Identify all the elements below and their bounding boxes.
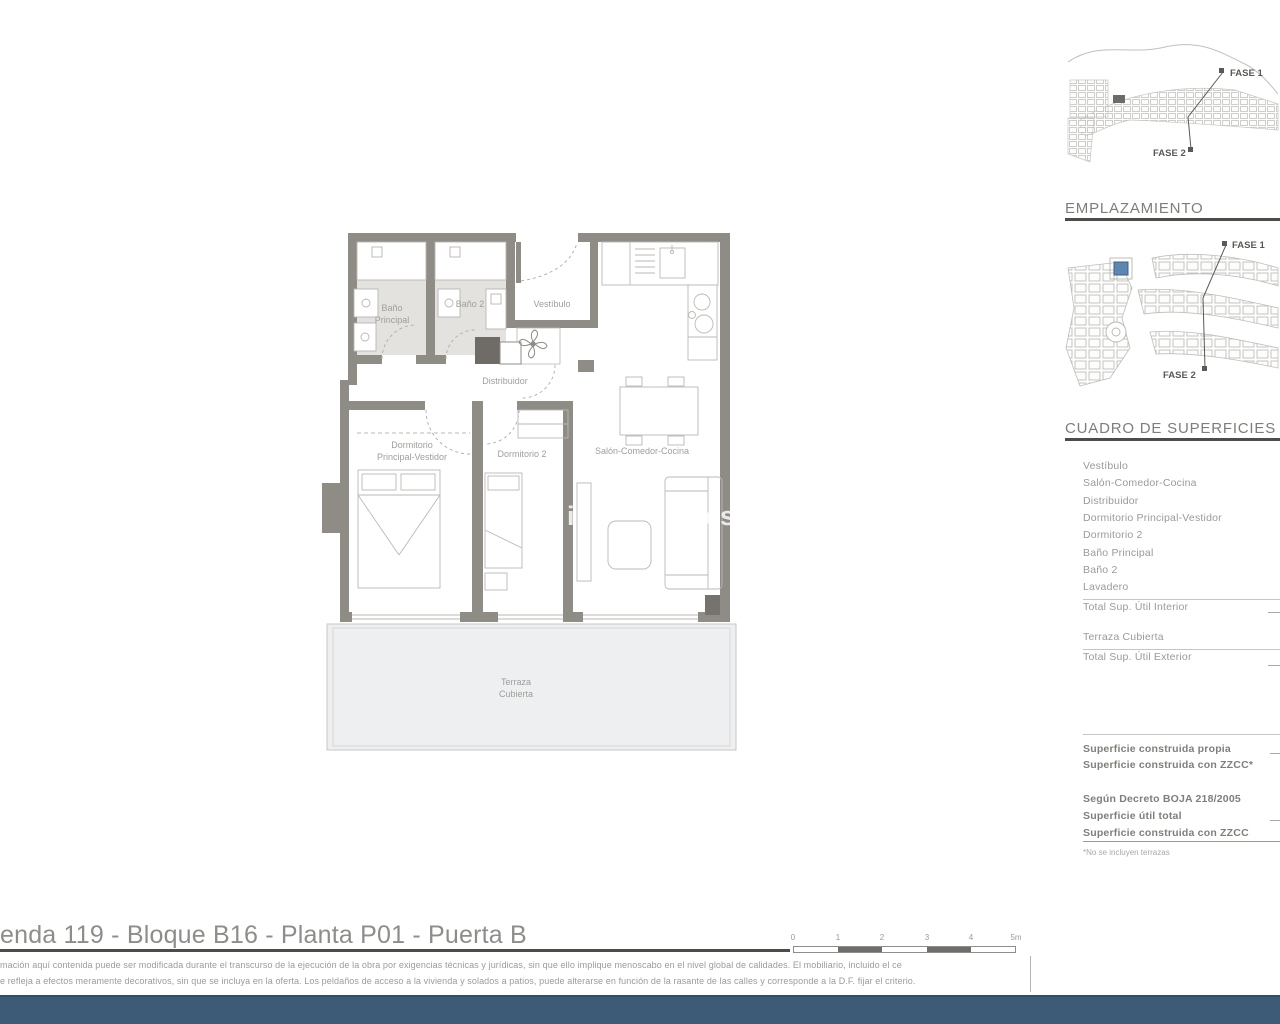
footer-divider: [1030, 956, 1031, 992]
pillar: [705, 595, 720, 615]
floor-plan: Baño Principal Baño 2 Vestíbulo Distribu…: [320, 225, 745, 755]
util-total-row: Superficie útil total: [1083, 810, 1182, 822]
svg-text:es: es: [705, 501, 735, 531]
construida-zzcc-row: Superficie construida con ZZCC*: [1083, 759, 1253, 771]
svg-text:Principal: Principal: [375, 315, 410, 325]
label-vestibulo: Vestíbulo: [533, 299, 570, 309]
decreto-row: Según Decreto BOJA 218/2005: [1083, 793, 1241, 805]
surfaces-rule: [1065, 438, 1280, 441]
surface-row-dormitorio2: Dormitorio 2: [1083, 529, 1143, 541]
label-dormitorio2: Dormitorio 2: [497, 449, 546, 459]
label-dormitorio-principal: Dormitorio: [391, 440, 433, 450]
construida-propia-row: Superficie construida propia: [1083, 743, 1231, 755]
label-distribuidor: Distribuidor: [482, 376, 528, 386]
site-plan-overview: FASE 1 FASE 2: [1060, 22, 1280, 187]
label-terraza: Terraza: [501, 677, 531, 687]
disclaimer-line1: mación aquí contenida puede ser modifica…: [0, 960, 902, 970]
terraza-row: Terraza Cubierta: [1083, 631, 1164, 643]
terrazas-footnote: *No se incluyen terrazas: [1083, 848, 1170, 857]
surface-row-salon: Salón-Comedor-Cocina: [1083, 477, 1197, 489]
site-plan-emplazamiento: FASE 1 FASE 2: [1060, 228, 1280, 396]
windows: [352, 615, 698, 619]
surfaces-heading: CUADRO DE SUPERFICIES: [1065, 420, 1276, 437]
total-interior-topline: [1083, 599, 1280, 600]
terrace: [327, 624, 736, 750]
emplazamiento-heading: EMPLAZAMIENTO: [1065, 200, 1203, 217]
construida-zzcc2-row: Superficie construida con ZZCC: [1083, 827, 1249, 839]
total-exterior-row: Total Sup. Útil Exterior: [1083, 651, 1192, 663]
plan-sheet: Baño Principal Baño 2 Vestíbulo Distribu…: [0, 0, 1280, 1024]
surface-row-dormitorio-principal: Dormitorio Principal-Vestidor: [1083, 512, 1222, 524]
surface-row-lavadero: Lavadero: [1083, 581, 1128, 593]
svg-text:Cubierta: Cubierta: [499, 689, 533, 699]
fase1-label: FASE 1: [1232, 240, 1265, 251]
footer-bar: [0, 995, 1280, 1024]
construida-bottomline: [1083, 841, 1280, 842]
scale-labels: 0 1 2 3 4 5m: [0, 933, 1030, 943]
highlighted-block-b16: [1114, 262, 1128, 275]
fase1-label: FASE 1: [1230, 68, 1263, 79]
total-interior-row: Total Sup. Útil Interior: [1083, 601, 1188, 613]
label-bano-principal: Baño: [381, 303, 402, 313]
svg-text:i: i: [567, 501, 575, 531]
fase2-label: FASE 2: [1153, 148, 1186, 159]
svg-text:Principal-Vestidor: Principal-Vestidor: [377, 452, 447, 462]
surface-row-distribuidor: Distribuidor: [1083, 495, 1139, 507]
surface-row-vestibulo: Vestíbulo: [1083, 460, 1128, 472]
fase2-label: FASE 2: [1163, 370, 1196, 381]
label-bano2: Baño 2: [456, 299, 485, 309]
total-exterior-topline: [1083, 649, 1280, 650]
surface-row-bano-principal: Baño Principal: [1083, 547, 1154, 559]
construida-topline: [1083, 734, 1280, 735]
surface-row-bano2: Baño 2: [1083, 564, 1117, 576]
title-rule: [0, 949, 790, 952]
emplazamiento-rule: [1065, 218, 1280, 221]
disclaimer-line2: e refleja a efectos meramente decorativo…: [0, 976, 916, 986]
scale-bar: [793, 946, 1016, 953]
label-salon: Salón-Comedor-Cocina: [595, 446, 689, 456]
building-rows: [1066, 254, 1278, 386]
